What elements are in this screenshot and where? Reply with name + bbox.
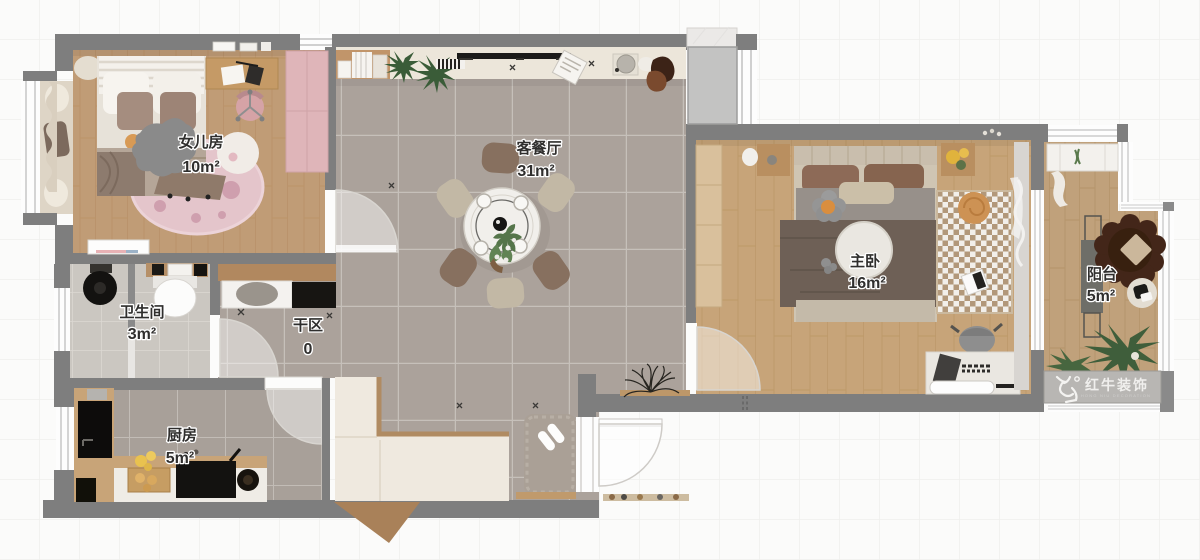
svg-text:HONG NIU DECORATION: HONG NIU DECORATION [1081, 393, 1151, 398]
svg-text:主卧: 主卧 [850, 252, 880, 270]
svg-text:5m²: 5m² [1087, 288, 1115, 305]
svg-text:女儿房: 女儿房 [178, 133, 223, 151]
svg-text:5m²: 5m² [166, 450, 194, 467]
svg-text:客餐厅: 客餐厅 [515, 139, 561, 157]
svg-text:干区: 干区 [293, 317, 323, 334]
svg-text:3m²: 3m² [128, 326, 156, 343]
svg-text:0: 0 [304, 341, 313, 358]
svg-text:阳台: 阳台 [1087, 265, 1117, 283]
svg-text:10m²: 10m² [182, 159, 219, 176]
svg-text:红牛装饰: 红牛装饰 [1085, 377, 1149, 393]
svg-text:卫生间: 卫生间 [119, 303, 164, 321]
svg-text:16m²: 16m² [848, 275, 885, 292]
svg-text:厨房: 厨房 [167, 426, 197, 444]
svg-text:31m²: 31m² [517, 163, 554, 180]
